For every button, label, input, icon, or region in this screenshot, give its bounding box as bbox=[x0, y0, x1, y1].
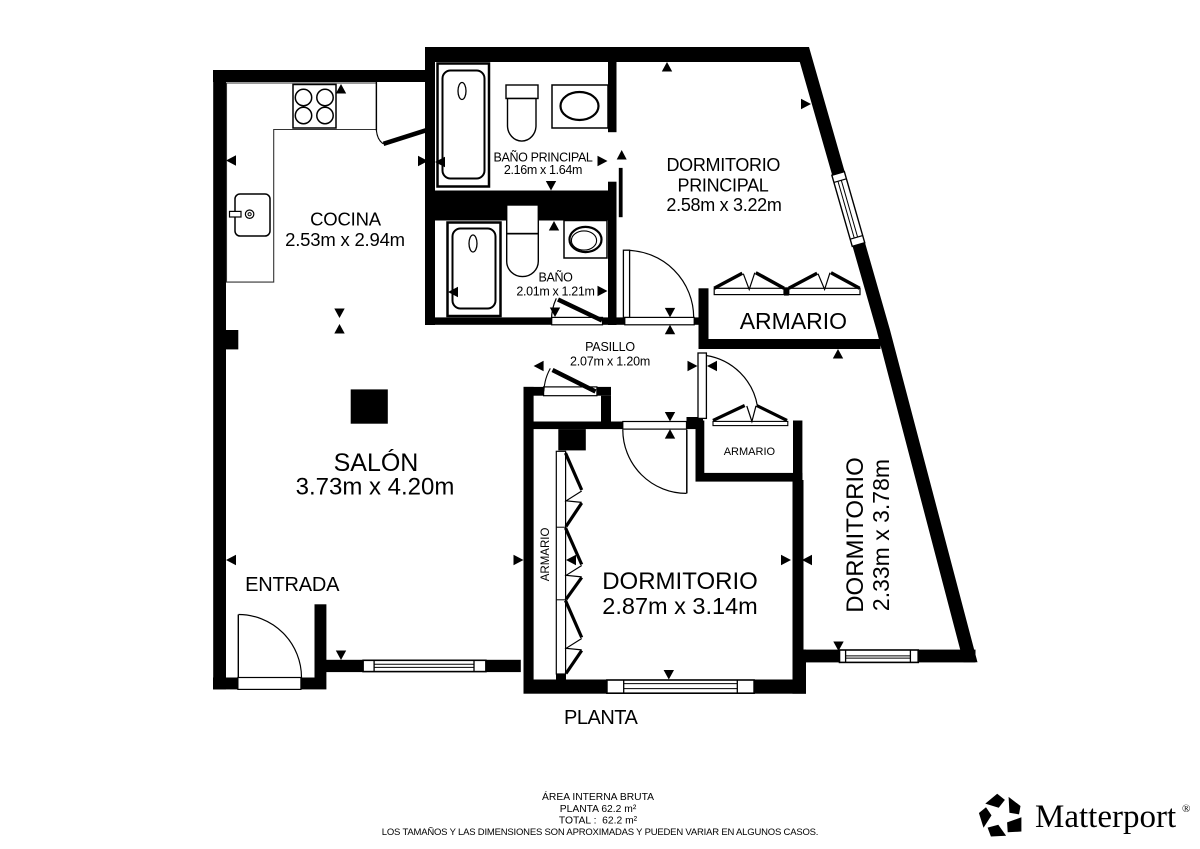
svg-text:Matterport: Matterport bbox=[1035, 799, 1176, 835]
svg-text:2.16m x 1.64m: 2.16m x 1.64m bbox=[504, 163, 582, 177]
svg-text:2.01m x 1.21m: 2.01m x 1.21m bbox=[516, 285, 594, 299]
svg-text:3.73m x 4.20m: 3.73m x 4.20m bbox=[296, 474, 455, 501]
svg-text:BAÑO: BAÑO bbox=[538, 271, 573, 285]
svg-text:ARMARIO: ARMARIO bbox=[740, 308, 847, 334]
svg-text:ÁREA INTERNA BRUTA: ÁREA INTERNA BRUTA bbox=[542, 790, 654, 803]
svg-text:COCINA: COCINA bbox=[310, 209, 382, 230]
svg-text:DORMITORIO: DORMITORIO bbox=[602, 568, 758, 595]
svg-text:ARMARIO: ARMARIO bbox=[540, 528, 552, 582]
svg-text:DORMITORIO: DORMITORIO bbox=[666, 155, 780, 175]
svg-text:PLANTA 62.2 m²: PLANTA 62.2 m² bbox=[560, 804, 637, 815]
svg-text:2.07m x 1.20m: 2.07m x 1.20m bbox=[570, 354, 650, 368]
svg-text:2.87m x 3.14m: 2.87m x 3.14m bbox=[602, 593, 757, 619]
svg-text:PRINCIPAL: PRINCIPAL bbox=[678, 176, 769, 196]
svg-text:PASILLO: PASILLO bbox=[585, 340, 635, 354]
svg-text:2.58m x 3.22m: 2.58m x 3.22m bbox=[666, 195, 781, 215]
svg-text:TOTAL : 62.2 m²: TOTAL : 62.2 m² bbox=[559, 816, 638, 827]
svg-text:LOS TAMAÑOS Y LAS DIMENSIONES: LOS TAMAÑOS Y LAS DIMENSIONES SON APROXI… bbox=[382, 827, 818, 838]
svg-text:ARMARIO: ARMARIO bbox=[724, 446, 776, 458]
svg-text:PLANTA: PLANTA bbox=[564, 707, 638, 729]
svg-text:2.53m x 2.94m: 2.53m x 2.94m bbox=[285, 229, 405, 250]
svg-text:DORMITORIO: DORMITORIO bbox=[842, 457, 869, 613]
svg-text:®: ® bbox=[1182, 803, 1190, 815]
svg-text:2.33m x 3.78m: 2.33m x 3.78m bbox=[868, 459, 894, 611]
svg-text:ENTRADA: ENTRADA bbox=[245, 574, 340, 596]
